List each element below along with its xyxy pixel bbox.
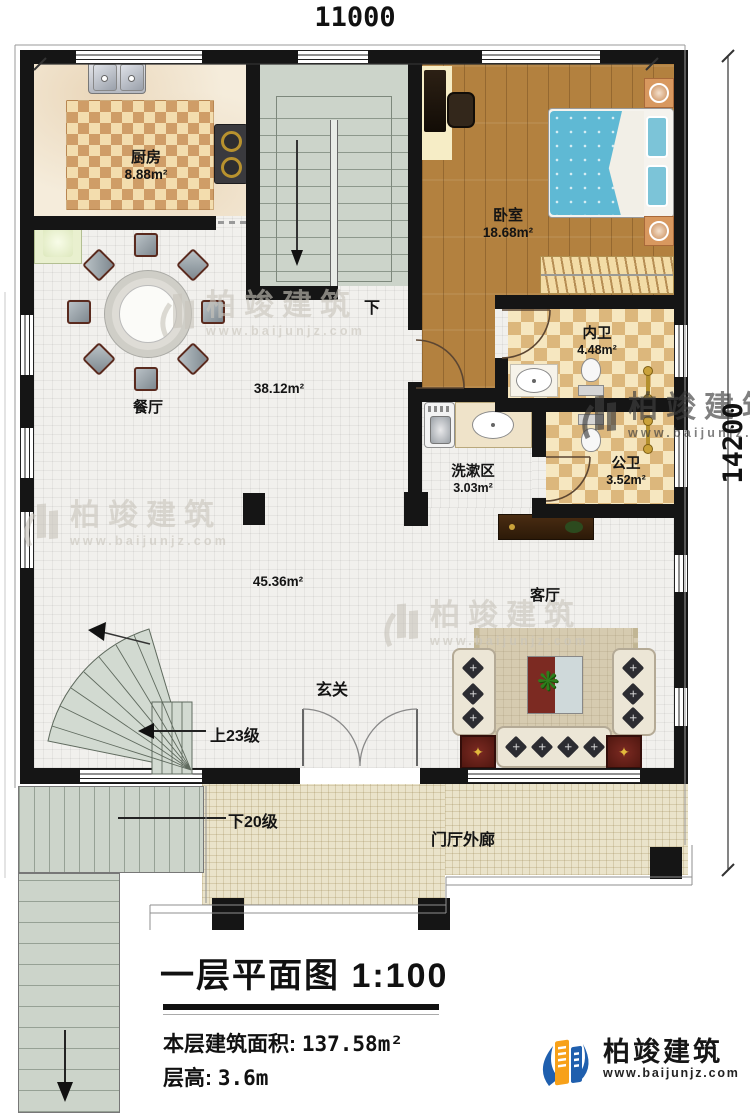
window-right-innerbath [674, 325, 688, 377]
side-table-right: ✦ [606, 735, 642, 769]
wall-publicbath-west-upper [532, 412, 546, 457]
dimension-right: 14200 [718, 397, 744, 489]
room-label-foyer: 玄关 [282, 676, 382, 700]
star-icon: ✦ [472, 744, 484, 760]
stair-label-up23: 上23级 [210, 722, 300, 746]
bedroom-desk [424, 70, 446, 132]
stair-label-down: 下 [352, 294, 392, 318]
plan-title: 一层平面图 1:100 [160, 948, 448, 997]
room-label-kitchen: 厨房8.88m² [96, 146, 196, 182]
bedroom-chair [447, 92, 475, 128]
room-label-porch: 门厅外廊 [398, 826, 528, 850]
sofa-bottom: ✕ ✕ ✕ ✕ [496, 726, 612, 768]
dining-table-top [119, 285, 177, 343]
wash-sink [472, 411, 514, 439]
window-right-living-2 [674, 688, 688, 726]
down-arrow-icon [57, 1082, 73, 1102]
coffee-table: ❋ [527, 656, 583, 714]
dining-chair [67, 300, 91, 324]
wall-publicbath-south [532, 504, 674, 518]
bed-pillow [646, 116, 668, 158]
side-table-left: ✦ [460, 735, 496, 769]
window-bottom-stair [80, 769, 202, 783]
dining-chair [134, 367, 158, 391]
column-center [243, 493, 265, 525]
innerbath-sink [516, 368, 552, 393]
wall-kitchen-stair [246, 64, 260, 300]
wall-right [674, 50, 688, 784]
exterior-stair-upper-flight [18, 786, 204, 873]
company-website: www.baijunjz.com [603, 1066, 740, 1080]
wall-innerbath-south [495, 398, 674, 412]
company-name: 柏竣建筑 [603, 1038, 740, 1066]
plant-icon: ❋ [537, 666, 559, 697]
floor-area-line: 本层建筑面积: 137.58m² [163, 1028, 403, 1058]
area-label-dining: 38.12m² [229, 381, 329, 396]
nightstand [644, 216, 674, 246]
window-top-stairwell [298, 50, 368, 64]
dining-chair [134, 233, 158, 257]
bed-pillow [646, 165, 668, 207]
window-left-3 [20, 512, 34, 568]
nightstand [644, 78, 674, 108]
wall-left [20, 50, 34, 784]
window-top-kitchen [76, 50, 202, 64]
plan-scale: 1:100 [351, 957, 448, 995]
window-right-publicbath [674, 430, 688, 487]
floor-height-line: 层高: 3.6m [163, 1062, 268, 1092]
column-porch-3 [650, 847, 682, 879]
dining-chair [201, 300, 225, 324]
bedroom-corridor-floor [422, 295, 495, 388]
wall-bedroom-west-upper [408, 64, 422, 330]
column-hall [404, 492, 428, 526]
star-icon: ✦ [618, 744, 630, 760]
title-underline-thin [163, 1014, 439, 1015]
stair-down-arrow-icon [291, 250, 303, 266]
company-logo-icon [537, 1026, 595, 1092]
area-label-living: 45.36m² [228, 574, 328, 589]
exterior-stair-arrow-stem [64, 1030, 66, 1082]
wardrobe [540, 256, 674, 294]
wall-innerbath-north [495, 295, 674, 309]
column-porch-2 [418, 898, 450, 930]
room-label-inner-bath: 内卫4.48m² [547, 322, 647, 357]
publicbath-towel-rail [646, 424, 650, 446]
room-label-public-bath: 公卫3.52m² [576, 452, 676, 487]
kitchen-stove [214, 124, 248, 184]
room-label-bedroom: 卧室18.68m² [458, 204, 558, 240]
floor-plan-page: { "plan": { "dimensions": { "width_label… [0, 0, 750, 1119]
sofa-left: ✕ ✕ ✕ [452, 648, 496, 736]
innerbath-toilet [578, 358, 604, 397]
window-top-bedroom [482, 50, 600, 64]
company-logo: 柏竣建筑 www.baijunjz.com [537, 1026, 740, 1092]
wall-bedroom-west-lower [408, 382, 422, 503]
stair-label-down20: 下20级 [228, 808, 318, 832]
window-left-1 [20, 315, 34, 375]
room-label-dining: 餐厅 [98, 396, 198, 417]
title-underline [163, 1004, 439, 1010]
stair-guide-line [296, 140, 298, 252]
dimension-top: 11000 [295, 2, 415, 33]
publicbath-toilet [578, 414, 604, 453]
window-bottom-living [468, 769, 640, 783]
foyer-door-opening [300, 768, 420, 784]
exterior-stair-lower-flight [18, 873, 120, 1113]
wall-kitchen-south [34, 216, 216, 230]
room-label-living: 客厅 [495, 584, 595, 605]
window-left-2 [20, 428, 34, 478]
wall-stair-south [246, 286, 338, 300]
column-porch-1 [212, 898, 244, 930]
stair-center-rail [330, 120, 338, 286]
innerbath-towel-rail [646, 374, 650, 396]
washing-machine [424, 402, 455, 448]
room-label-wash-area: 洗漱区3.03m² [423, 460, 523, 495]
sofa-right: ✕ ✕ ✕ [612, 648, 656, 736]
wall-innerbath-west [495, 358, 508, 402]
window-right-living-1 [674, 555, 688, 592]
wall-corridor-south [422, 388, 495, 402]
kitchen-opening-marks [218, 221, 246, 224]
